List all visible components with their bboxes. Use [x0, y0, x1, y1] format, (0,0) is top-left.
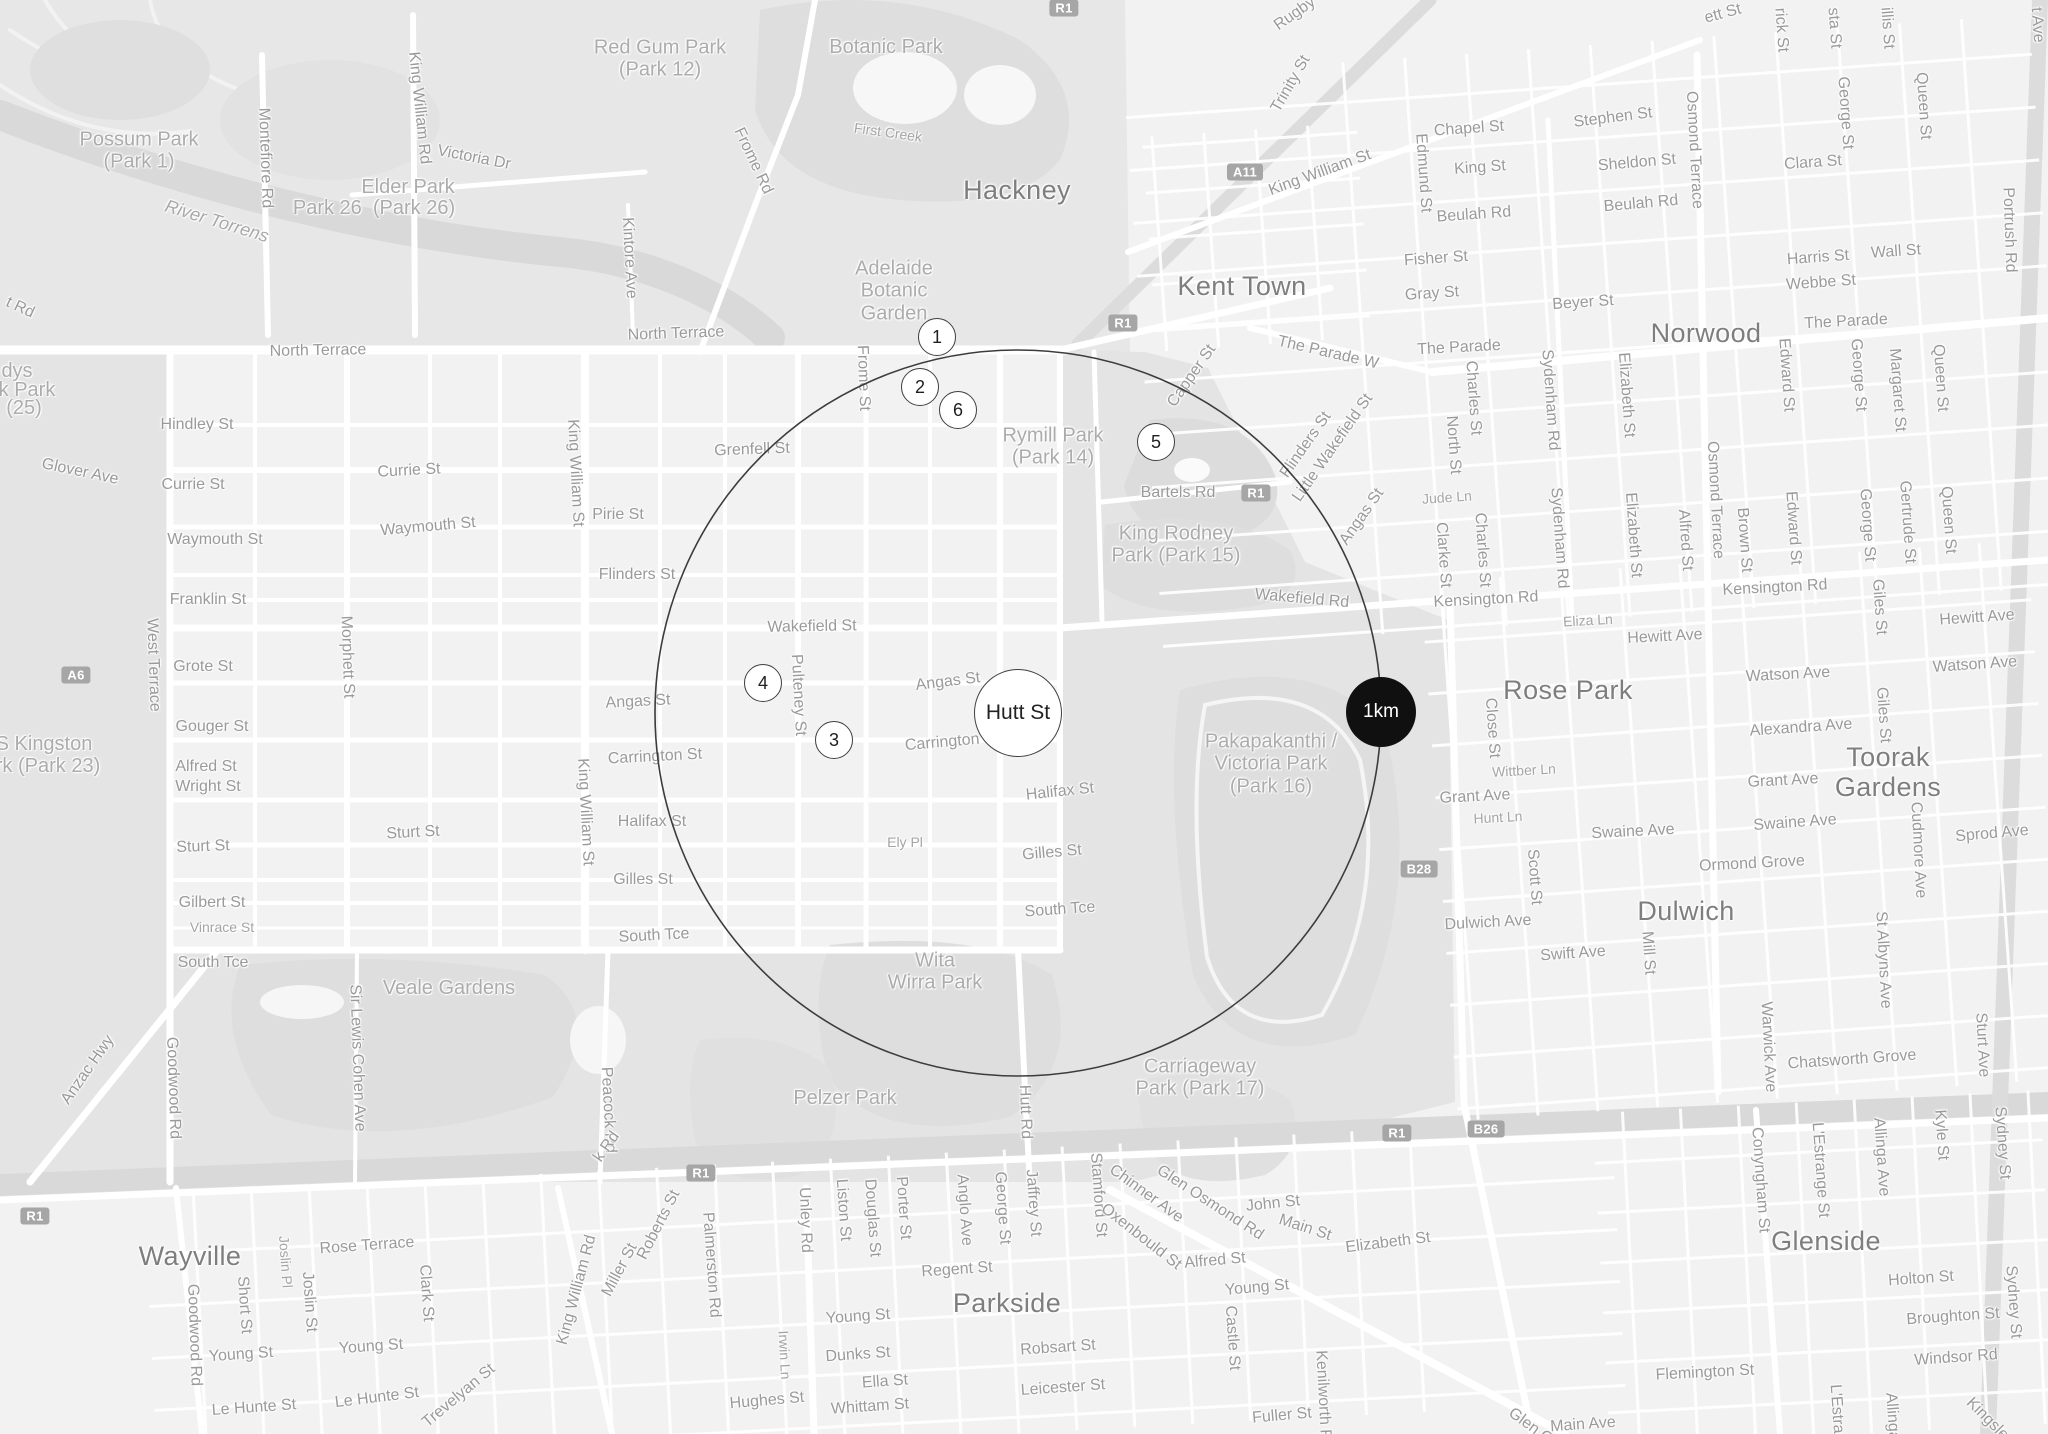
center-marker-label: Hutt St — [986, 701, 1050, 725]
radius-badge[interactable]: 1km — [1346, 677, 1416, 747]
numbered-marker-1[interactable]: 1 — [918, 318, 956, 356]
numbered-marker-4[interactable]: 4 — [744, 664, 782, 702]
numbered-marker-6[interactable]: 6 — [939, 391, 977, 429]
numbered-marker-3[interactable]: 3 — [815, 721, 853, 759]
map-canvas[interactable]: Possum Park(Park 1)River TorrensRed Gum … — [0, 0, 2048, 1434]
numbered-marker-5[interactable]: 5 — [1137, 423, 1175, 461]
numbered-marker-2[interactable]: 2 — [901, 368, 939, 406]
radius-badge-label: 1km — [1363, 701, 1399, 723]
center-marker[interactable]: Hutt St — [974, 669, 1062, 757]
